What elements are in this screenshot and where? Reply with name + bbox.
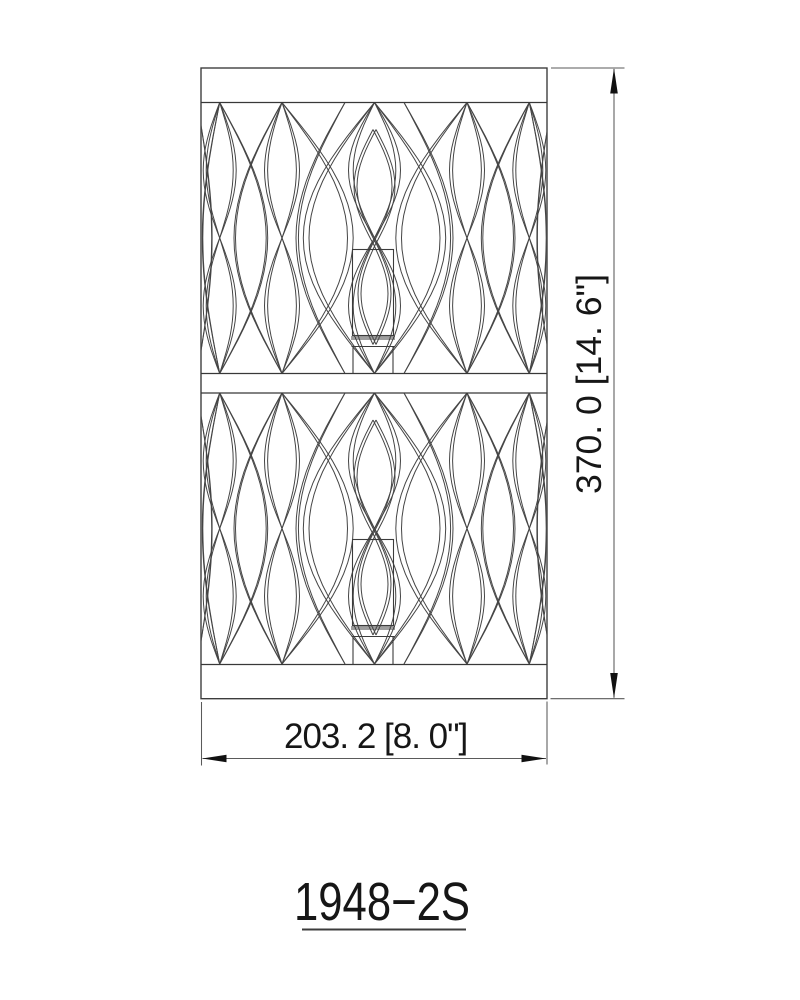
svg-text:203. 2 [8. 0"]: 203. 2 [8. 0"] xyxy=(284,717,467,756)
svg-text:370. 0 [14. 6"]: 370. 0 [14. 6"] xyxy=(570,274,609,494)
svg-text:1948−2S: 1948−2S xyxy=(294,872,470,932)
